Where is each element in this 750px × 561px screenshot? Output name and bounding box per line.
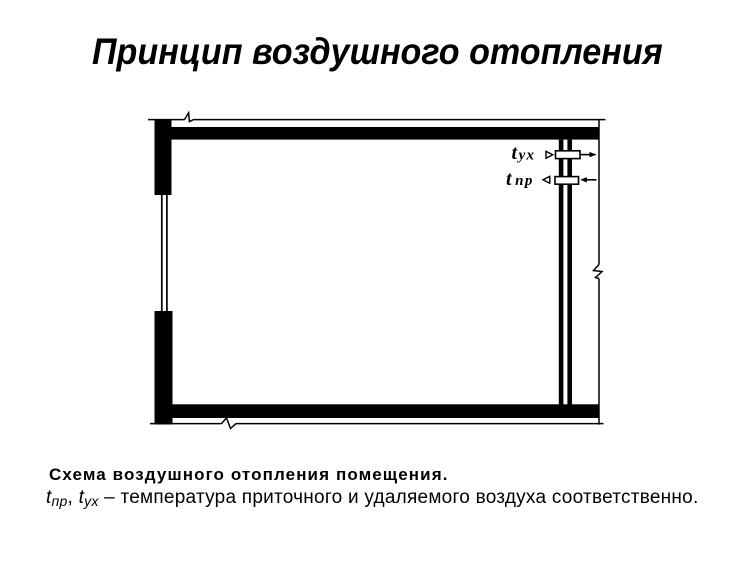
svg-text:tух: tух [512,142,536,164]
svg-text:tпр: tпр [506,168,534,190]
